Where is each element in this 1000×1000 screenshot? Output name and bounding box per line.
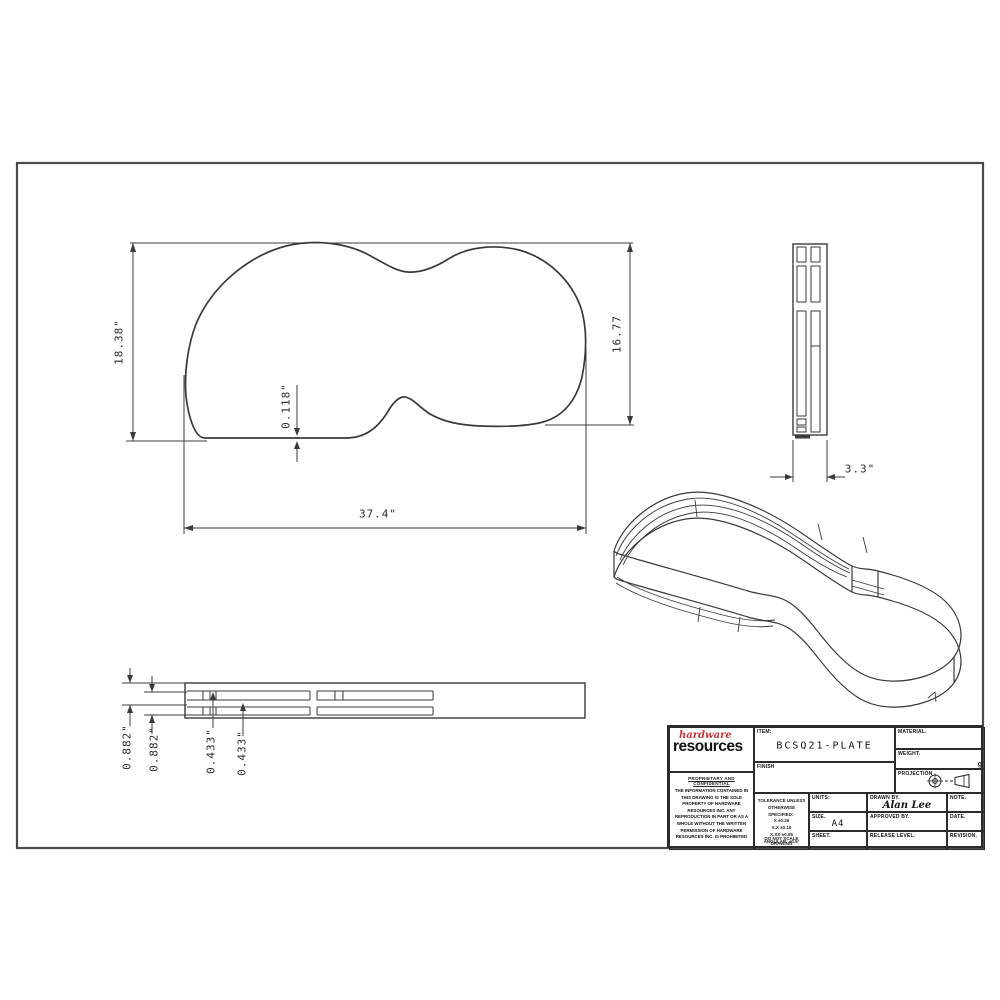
edge-view-dimensions [122, 668, 246, 736]
sheet-cell: SHEET. [809, 831, 867, 850]
dim-side-depth: 3.3" [845, 463, 876, 476]
company-logo: hardware resources [673, 732, 752, 756]
size-value: A4 [810, 819, 866, 829]
material-cell: MATERIAL. [895, 727, 985, 749]
logo-cell: hardware resources [669, 727, 754, 772]
drawing-line-art [0, 0, 1000, 1000]
dim-front-overall-width: 37.4" [359, 508, 397, 521]
logo-word-resources: resources [673, 738, 752, 756]
drawing-sheet: 18.38" 16.77 0.118" 37.4" 3.3" 0.882" 0.… [0, 0, 1000, 1000]
tolerance-line: X.X ±0.10 [755, 825, 808, 832]
side-view [793, 244, 827, 437]
note-label: NOTE. [948, 794, 984, 801]
front-view [185, 243, 585, 438]
date-label: DATE. [948, 813, 984, 820]
release-level-label: RELEASE LEVEL. [868, 832, 946, 839]
revision-cell: REVISION. [947, 831, 985, 850]
tolerance-cell: TOLERANCE UNLESS OTHERWISE SPECIFIED:- X… [754, 793, 809, 850]
projection-cell: PROJECTION [895, 769, 985, 793]
item-label: ITEM: [755, 728, 894, 735]
dim-edge-2: 0.882" [148, 726, 161, 772]
size-cell: SIZE. A4 [809, 812, 867, 831]
weight-cell: WEIGHT. g [895, 749, 985, 769]
front-view-dimensions [126, 243, 634, 534]
drawn-by-signature: Alan Lee [868, 800, 946, 811]
front-view-outline [185, 243, 585, 438]
units-cell: UNITS: [809, 793, 867, 812]
note-cell: NOTE. [947, 793, 985, 812]
item-cell: ITEM: BCSQ21-PLATE [754, 727, 895, 762]
weight-unit: g [978, 761, 982, 768]
dim-front-right-height: 16.77 [611, 315, 624, 353]
revision-label: REVISION. [948, 832, 984, 839]
dim-edge-1: 0.882" [121, 724, 134, 770]
release-level-cell: RELEASE LEVEL. [867, 831, 947, 850]
dim-front-wall-thickness: 0.118" [280, 383, 293, 429]
proprietary-cell: PROPRIETARY AND CONFIDENTIAL THE INFORMA… [669, 772, 754, 850]
item-number: BCSQ21-PLATE [755, 740, 894, 751]
sheet-label: SHEET. [810, 832, 866, 839]
weight-label: WEIGHT. [896, 750, 984, 757]
proprietary-title: PROPRIETARY AND CONFIDENTIAL [671, 776, 752, 786]
dim-front-overall-height: 18.38" [113, 319, 126, 365]
finish-cell: FINISH [754, 762, 895, 793]
approved-by-label: APPROVED BY. [868, 813, 946, 820]
edge-view [185, 683, 585, 718]
tolerance-line: TOLERANCE UNLESS [755, 798, 808, 805]
isometric-view [614, 492, 961, 707]
material-label: MATERIAL. [896, 728, 984, 735]
do-not-scale-note: DO NOT SCALE DRAWING [755, 836, 808, 846]
tolerance-line: X ±0.25 [755, 818, 808, 825]
tolerance-line: OTHERWISE SPECIFIED:- [755, 805, 808, 819]
title-block: hardware resources PROPRIETARY AND CONFI… [667, 725, 983, 848]
third-angle-projection-icon [926, 773, 978, 789]
units-label: UNITS: [810, 794, 866, 801]
proprietary-body: THE INFORMATION CONTAINED IN THIS DRAWIN… [670, 788, 753, 841]
side-view-dimensions [770, 440, 845, 482]
dim-edge-4: 0.433" [236, 730, 249, 776]
date-cell: DATE. [947, 812, 985, 831]
approved-by-cell: APPROVED BY. [867, 812, 947, 831]
finish-label: FINISH [755, 763, 894, 770]
dim-edge-3: 0.433" [205, 728, 218, 774]
drawn-by-cell: DRAWN BY. Alan Lee [867, 793, 947, 812]
